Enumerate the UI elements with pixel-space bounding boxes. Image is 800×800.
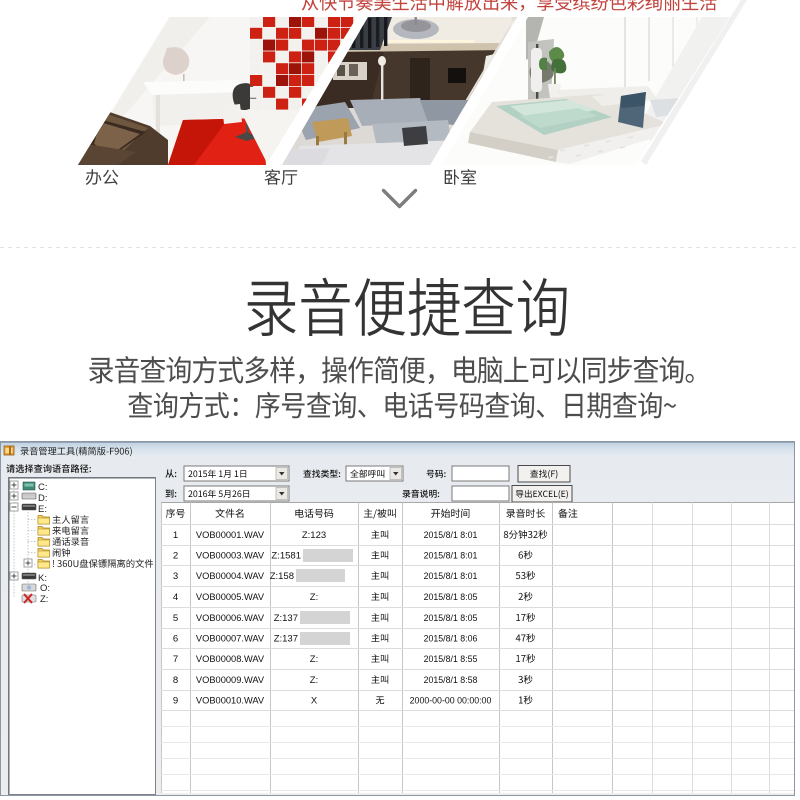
svg-text:1: 1 — [173, 530, 178, 541]
svg-text:2015/8/1 8:55: 2015/8/1 8:55 — [424, 654, 478, 664]
svg-text:VOB00009.WAV: VOB00009.WAV — [196, 675, 265, 685]
svg-text:2015/8/1 8:06: 2015/8/1 8:06 — [424, 634, 478, 644]
svg-text:2015/8/1 8:58: 2015/8/1 8:58 — [424, 675, 478, 685]
svg-text:VOB00005.WAV: VOB00005.WAV — [196, 592, 265, 602]
svg-text:E:: E: — [38, 504, 47, 515]
svg-text:Z:: Z: — [40, 594, 48, 605]
svg-text:3: 3 — [173, 571, 178, 582]
svg-text:Z:137: Z:137 — [274, 613, 298, 624]
svg-text:VOB00003.WAV: VOB00003.WAV — [196, 551, 265, 561]
svg-text:VOB00010.WAV: VOB00010.WAV — [196, 696, 265, 706]
svg-text:Z:: Z: — [310, 654, 318, 665]
svg-text:Z:158: Z:158 — [270, 571, 294, 582]
svg-text:Z:: Z: — [310, 675, 318, 686]
svg-text:6: 6 — [173, 634, 178, 645]
svg-text:2015/8/1 8:01: 2015/8/1 8:01 — [424, 571, 478, 581]
svg-text:4: 4 — [173, 592, 179, 603]
svg-text:2015/8/1 8:05: 2015/8/1 8:05 — [424, 592, 478, 602]
svg-text:8: 8 — [173, 675, 178, 686]
svg-text:VOB00008.WAV: VOB00008.WAV — [196, 654, 265, 664]
svg-text:O:: O: — [40, 583, 50, 594]
svg-text:D:: D: — [38, 493, 48, 504]
svg-text:2015/8/1 8:01: 2015/8/1 8:01 — [424, 530, 478, 540]
svg-text:5: 5 — [173, 613, 178, 624]
svg-text:X: X — [311, 696, 318, 707]
svg-text:VOB00006.WAV: VOB00006.WAV — [196, 613, 265, 623]
svg-text:VOB00004.WAV: VOB00004.WAV — [196, 571, 265, 581]
svg-text:VOB00001.WAV: VOB00001.WAV — [196, 530, 265, 540]
svg-text:9: 9 — [173, 696, 178, 707]
svg-text:7: 7 — [173, 654, 178, 665]
svg-text:2015/8/1 8:01: 2015/8/1 8:01 — [424, 551, 478, 561]
svg-text:2000-00-00 00:00:00: 2000-00-00 00:00:00 — [410, 696, 492, 706]
svg-text:Z:1581: Z:1581 — [271, 551, 301, 562]
svg-text:Z:137: Z:137 — [274, 634, 298, 645]
svg-text:2015/8/1 8:05: 2015/8/1 8:05 — [424, 613, 478, 623]
svg-text:2: 2 — [173, 551, 178, 562]
svg-text:VOB00007.WAV: VOB00007.WAV — [196, 634, 265, 644]
svg-text:C:: C: — [38, 482, 48, 493]
svg-text:Z:: Z: — [310, 592, 318, 603]
svg-text:Z:123: Z:123 — [302, 530, 326, 541]
